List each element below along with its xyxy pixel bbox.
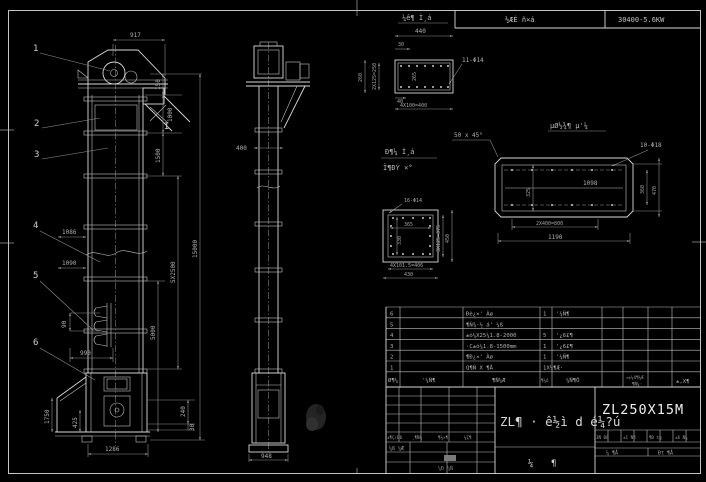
dim-1286: 1286 xyxy=(105,446,120,453)
header-note-right: 30400-5.6KW xyxy=(618,16,665,24)
side-view: 400 948 xyxy=(236,42,310,462)
bom-row: 4 ±ó¼X25¼1.8-2000 5 '¿6£¶ xyxy=(390,332,573,339)
bom-row: 1 Q¶Ñ X ¶Å 1X¼¶Æ· xyxy=(390,365,563,372)
dim-1098: 1098 xyxy=(583,180,598,187)
dim-5000: 5000 xyxy=(150,325,157,340)
dim-b-pitch: 2X400=800 xyxy=(536,221,563,227)
bom-h-name: ¶Ñ¼Æ xyxy=(492,377,506,384)
label-holes-a: 11-Φ14 xyxy=(462,57,484,64)
dim-c-right2: 450 xyxy=(445,234,451,243)
dim-head-width: 917 xyxy=(130,32,141,39)
bom-no: 1 xyxy=(390,366,393,372)
dim-c-pitch: 4X101.5=406 xyxy=(390,263,423,269)
bom-qty: 1 xyxy=(543,312,546,318)
front-view: I xyxy=(33,32,205,457)
dim-a-30: 30 xyxy=(398,42,404,48)
dim-325: 325 xyxy=(526,188,532,197)
dim-440: 440 xyxy=(415,28,426,35)
bom-header-row: Ø¶¼ '¼Ñ¶ ¶Ñ¼Æ ¶¼ô ¼Ñ¶Ô »±¼X¶¼Æ ¶Ñ¼· ±,X¶ xyxy=(388,375,689,388)
bom-row: 6 Ðè¿×' Àø 1 '¼Ñ¶ xyxy=(390,311,569,318)
bom-h-dwg: '¼Ñ¶ xyxy=(422,377,435,384)
dim-1000: 1000 xyxy=(167,107,174,122)
boot-section xyxy=(55,373,150,442)
dim-948: 948 xyxy=(261,453,272,460)
dim-1500: 1500 xyxy=(155,148,162,163)
dim-430: 430 xyxy=(404,272,413,278)
bom-qty: 1 xyxy=(543,355,546,361)
signature-mark xyxy=(444,455,456,461)
dim-5x2500: 5X2500 xyxy=(170,261,177,283)
smudge-artifact xyxy=(306,404,326,431)
bucket-chain xyxy=(94,303,111,347)
dim-30: 30 xyxy=(189,423,196,431)
tb-cell-3: ¶Ð tg xyxy=(649,435,662,440)
bolt-holes-a xyxy=(400,65,449,88)
title-block: ±¶Ç(Ðß ¸¶Ñ¼ ¶¼×¶ ¼Ç¶ ¼ß ¼Æ ¼Ð ¼Ñ ZL¶ · ê… xyxy=(386,387,700,474)
bom-mat: '¿6£¶ xyxy=(556,344,573,350)
sig-header-4: ¼Ç¶ xyxy=(464,435,472,441)
balloon-labels: 1 2 3 4 5 6 xyxy=(33,44,110,380)
dim-a-left2: 260 xyxy=(358,73,364,82)
dim-330: 330 xyxy=(397,236,403,245)
dim-360: 360 xyxy=(640,185,646,194)
bom-mat: '¼Ñ¶ xyxy=(556,311,569,318)
dim-1750: 1750 xyxy=(44,409,51,424)
label-holes-c: 16-Φ14 xyxy=(404,198,422,204)
dim-c-right1: 3X125=375 xyxy=(436,225,442,252)
dim-1190: 1190 xyxy=(548,234,563,241)
bom-table: 6 Ðè¿×' Àø 1 '¼Ñ¶ 5 ¶Ñ¾·½ á' ¼ß 4 ±ó¼X25… xyxy=(386,307,700,474)
bom-row: 3 ·C±ó¼1.8-1500mm 1 '¿6£¶ xyxy=(390,343,573,350)
sheet-type-char2: ¶ xyxy=(551,459,556,469)
sheet-type-char1: ¼ xyxy=(528,459,533,469)
bom-mat: '¿6£¶ xyxy=(556,333,573,339)
bom-name: Ðè¿×' Àø xyxy=(466,311,494,318)
bom-name: Q¶Ñ X ¶Å xyxy=(466,365,494,372)
dim-1086: 1086 xyxy=(62,229,77,236)
balloon-6: 6 xyxy=(33,338,38,348)
detail-c-title1: Ð¶¼ Ì¸á xyxy=(385,147,415,156)
balloon-2: 2 xyxy=(34,119,39,129)
sig-header-3: ¶¼×¶ xyxy=(438,435,449,441)
section-mark: I xyxy=(164,122,169,132)
bom-mat: '¼Ñ¶ xyxy=(556,354,569,361)
dim-425: 425 xyxy=(72,417,79,428)
header-note-left: ½ÆÈ ñ×á xyxy=(505,15,535,24)
bom-row: 2 ¶Ð¿×' Àø 1 '¼Ñ¶ xyxy=(390,354,569,361)
bom-h-mat: ¼Ñ¶Ô xyxy=(566,377,580,384)
balloon-1: 1 xyxy=(33,44,38,54)
elevator-assembly-drawing: ½ÆÈ ñ×á 30400-5.6KW I xyxy=(0,0,706,482)
dim-470: 470 xyxy=(652,186,658,195)
sheet-total-label: Ðt ¶Å xyxy=(658,450,673,457)
front-dimensions: 917 150 1000 1500 5X2500 5000 15000 2 xyxy=(44,32,205,457)
dim-90: 90 xyxy=(61,320,68,328)
dim-a-left1: 2X125=250 xyxy=(372,63,378,90)
dim-150: 150 xyxy=(155,79,162,90)
dim-400: 400 xyxy=(236,145,247,152)
bom-h-remark: ±,X¶ xyxy=(676,379,689,385)
balloon-5: 5 xyxy=(33,271,38,281)
bom-name: ¶Ð¿×' Àø xyxy=(466,354,494,361)
dim-a-inner: 265 xyxy=(412,72,418,81)
bom-qty: 1 xyxy=(543,344,546,350)
detail-b-title: µØ½¾¶ µ'¼ xyxy=(550,122,588,130)
detail-a-title: ¼ê¶ Ì¸á xyxy=(402,13,432,22)
tb-cell-1: 3Ñ Ðß xyxy=(596,435,609,440)
bom-row: 5 ¶Ñ¾·½ á' ¼ß xyxy=(390,321,504,328)
detail-flange-strip: ¼ê¶ Ì¸á 440 30 265 2X125=250 260 40 4X10… xyxy=(358,13,498,157)
dim-990: 990 xyxy=(80,350,91,357)
balloon-3: 3 xyxy=(34,150,39,160)
model-designation: ZL250X15M xyxy=(602,402,684,418)
bom-name: ¶Ñ¾·½ á' ¼ß xyxy=(466,321,504,328)
bom-h-weight: »±¼X¶¼Æ xyxy=(626,375,644,381)
bom-h-no: Ø¶¼ xyxy=(388,377,399,384)
label-holes-b: 10-Φ18 xyxy=(640,142,662,149)
dim-240: 240 xyxy=(180,406,187,417)
balloon-4: 4 xyxy=(33,221,38,231)
bolt-holes-b xyxy=(511,169,613,206)
dim-a-pitch: 4X100=400 xyxy=(400,103,427,109)
bom-name: ·C±ó¼1.8-1500mm xyxy=(466,343,517,350)
sig-header-1: ±¶Ç(Ðß xyxy=(387,435,403,440)
bom-no: 5 xyxy=(390,322,393,328)
bom-no: 4 xyxy=(390,333,394,339)
sig-std-label: ¼Ð ¼Ñ xyxy=(438,465,453,472)
chamfer-note: 50 x 45° xyxy=(454,132,483,139)
dim-365: 365 xyxy=(404,222,413,228)
bom-qty: 5 xyxy=(543,333,546,339)
bom-no: 6 xyxy=(390,312,393,318)
tb-cell-2: ±1 Ñ¶ xyxy=(623,435,636,440)
dim-1090: 1090 xyxy=(62,260,77,267)
bom-name: ±ó¼X25¼1.8-2000 xyxy=(466,332,517,339)
cad-drawing-canvas: ½ÆÈ ñ×á 30400-5.6KW I xyxy=(0,0,706,482)
sheet-frame: ½ÆÈ ñ×á 30400-5.6KW xyxy=(0,0,706,474)
bom-no: 2 xyxy=(390,355,393,361)
sheet-no-label: ¼ ¶Å xyxy=(606,450,618,457)
dim-15000: 15000 xyxy=(192,240,199,258)
bom-h-qty: ¶¼ô xyxy=(541,378,549,384)
bom-no: 3 xyxy=(390,344,393,350)
bom-qty: 1X¼¶Æ· xyxy=(543,366,563,372)
detail-c-title2: Ï¶ÐÝ ×° xyxy=(383,163,413,172)
sig-design-label: ¼ß ¼Æ xyxy=(389,446,404,452)
detail-square-flange: Ð¶¼ Ì¸á Ï¶ÐÝ ×° 16-Φ14 365 330 3X125=375… xyxy=(381,147,452,278)
detail-trough: µØ½¾¶ µ'¼ 1098 325 360 470 2X400=800 119… xyxy=(495,122,662,244)
